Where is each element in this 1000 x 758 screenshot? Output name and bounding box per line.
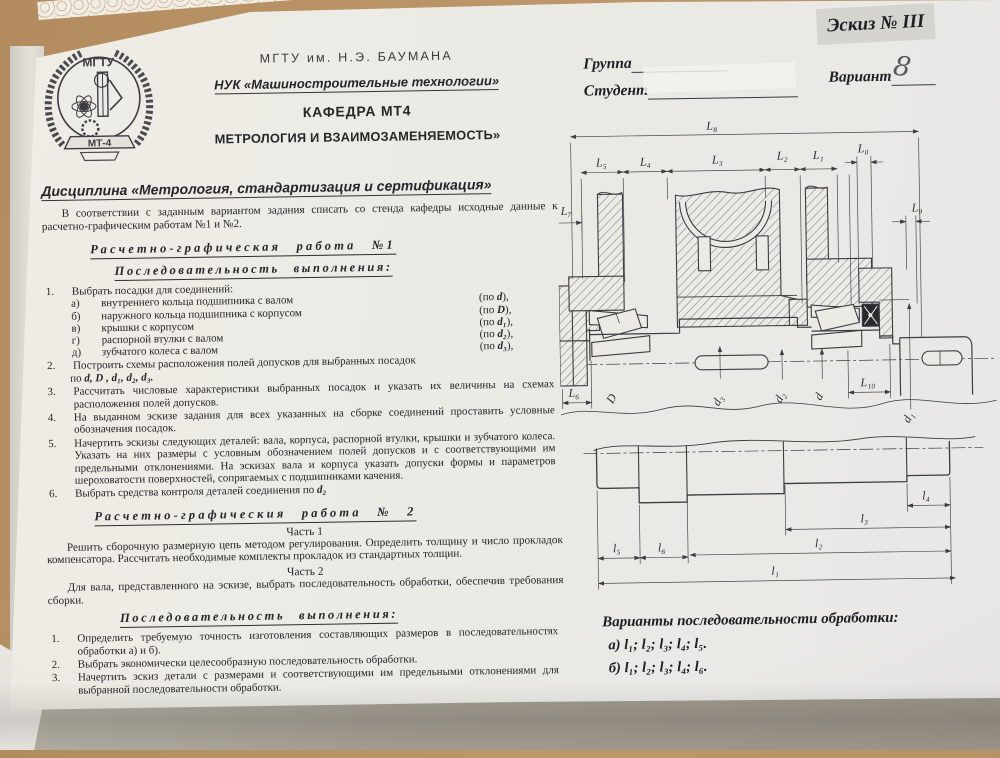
housing-left-wall (597, 194, 623, 284)
assembly-drawing: L₈ L₅ L₄ L₃ L₂ L₁ L₀ L₇ L₉ L₆ L₁₀ D d₃ d… (556, 96, 997, 443)
left-bearing (589, 309, 650, 357)
svg-text:L₇: L₇ (560, 204, 572, 218)
work1-subtitle: Последовательность выполнения: (114, 260, 392, 281)
gear-hub (675, 188, 797, 328)
variant-field: Вариант (828, 67, 935, 87)
department-subtitle: МЕТРОЛОГИЯ И ВЗАИМОЗАМЕНЯЕМОСТЬ» (158, 126, 556, 147)
svg-text:l₄: l₄ (922, 488, 930, 502)
svg-text:L₃: L₃ (711, 152, 723, 166)
svg-text:L₅: L₅ (595, 155, 607, 169)
svg-text:L₆: L₆ (567, 386, 579, 400)
work1-item-5: 5. Начертить эскизы следующих деталей: в… (45, 430, 562, 488)
svg-text:L₄: L₄ (639, 155, 651, 169)
svg-text:L₈: L₈ (705, 119, 717, 133)
variant-option-b: б) l₁; l₂; l₃; l₄; l₆. (609, 654, 983, 677)
faculty-name: НУК «Машиностроительные технологии» (214, 73, 499, 94)
svg-text:D: D (603, 391, 620, 407)
svg-text:l₆: l₆ (658, 540, 666, 554)
correction-patch (643, 62, 796, 93)
emblem-top-text: МГТУ (82, 55, 114, 70)
shaft-profile (596, 441, 950, 504)
svg-text:L₀: L₀ (857, 141, 869, 155)
university-emblem: МГТУ МТ-4 (39, 39, 159, 176)
svg-text:l₅: l₅ (613, 541, 621, 555)
work2-seq-title: Последовательность выполнения: (120, 607, 398, 628)
machining-variants: Варианты последовательности обработки: а… (602, 608, 983, 677)
svg-text:L₁₀: L₁₀ (859, 375, 875, 389)
svg-text:d: d (811, 390, 827, 403)
work2-title: Расчетно-графическия работа № 2 (94, 504, 416, 526)
svg-text:L₁: L₁ (812, 148, 824, 162)
emblem-banner-text: МТ-4 (88, 138, 112, 149)
variants-title: Варианты последовательности обработки: (602, 608, 982, 631)
svg-text:L₉: L₉ (911, 200, 923, 214)
assignment-sheet: МГТУ МТ-4 (0, 0, 1000, 750)
svg-text:l₃: l₃ (860, 511, 868, 525)
shaft-seal (862, 304, 879, 326)
svg-text:l₂: l₂ (815, 536, 823, 550)
department-name: КАФЕДРА МТ4 (158, 100, 556, 122)
discipline-title: Дисциплина «Метрология, стандартизация и… (41, 176, 491, 201)
variant-option-a: а) l₁; l₂; l₃; l₄; l₅. (608, 631, 982, 654)
sketch-number-badge: Эскиз № III (816, 3, 936, 45)
right-bearing (811, 304, 862, 349)
svg-text:l₁: l₁ (771, 564, 779, 578)
left-column: МГТУ МТ-4 (39, 33, 565, 697)
spacer-sleeve (789, 299, 807, 325)
svg-text:d₃: d₃ (709, 392, 726, 408)
shaft-sketch: l₄ l₃ l₂ l₅ l₆ l₁ (563, 420, 996, 612)
svg-text:L₂: L₂ (776, 148, 788, 162)
